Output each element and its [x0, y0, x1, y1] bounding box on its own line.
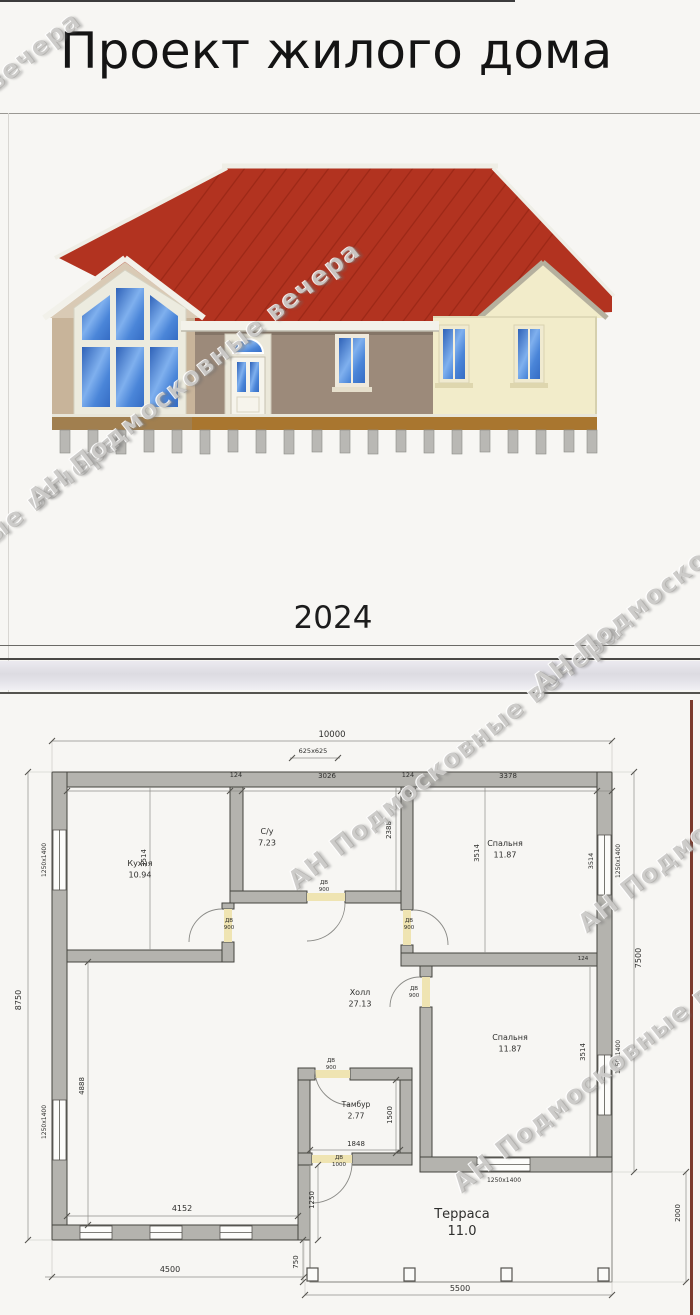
dimension-label: 2388 — [385, 821, 393, 839]
room-area: 11.87 — [494, 851, 517, 860]
dimension-label: 1250 — [308, 1191, 316, 1209]
dimension-label: 2000 — [674, 1204, 682, 1222]
door-thresholds — [224, 893, 430, 1163]
dimension-lines — [25, 738, 689, 1298]
dimension-label: 1250х1400 — [615, 1040, 622, 1074]
divider-line-3 — [0, 692, 700, 694]
dimension-label: 4888 — [78, 1077, 86, 1095]
porch-canopy — [181, 321, 439, 331]
dimension-label: 3026 — [318, 772, 336, 780]
door-size: 900 — [409, 993, 420, 999]
dimension-label: 1250х1400 — [41, 843, 48, 877]
door-size: 1000 — [332, 1162, 346, 1168]
dimension-label: 124 — [578, 956, 589, 962]
divider-band — [0, 661, 700, 690]
door-label: ДВ — [327, 1058, 335, 1064]
room-name: Спальня — [487, 839, 523, 848]
right-edge-line — [690, 700, 693, 1315]
right-window-1 — [435, 325, 473, 388]
room-name: С/у — [260, 827, 273, 836]
divider-line-1 — [0, 645, 700, 646]
dimension-label: 1250х1400 — [615, 844, 622, 878]
dimension-label: 8750 — [14, 990, 23, 1010]
house-elevation-image — [0, 115, 700, 560]
dimension-label: 1250х1400 — [41, 1105, 48, 1139]
entry-door — [225, 334, 271, 418]
divider-line-2 — [0, 658, 700, 660]
dimension-label: 10000 — [318, 730, 345, 740]
dimension-label: 750 — [292, 1255, 300, 1268]
room-area: 10.94 — [129, 871, 152, 880]
dimension-label: 124 — [230, 771, 242, 779]
header-divider — [0, 113, 700, 114]
room-name: Тамбур — [341, 1100, 371, 1109]
door-size: 900 — [319, 887, 330, 893]
door-size: 900 — [404, 925, 415, 931]
right-window-2 — [510, 325, 548, 388]
dimension-label: 1848 — [347, 1140, 365, 1148]
door-label: ДВ — [410, 986, 418, 992]
middle-window — [332, 334, 372, 392]
dimension-label: 1250х1400 — [487, 1177, 521, 1184]
page-title: Проект жилого дома — [60, 22, 612, 80]
dimension-label: 4152 — [172, 1204, 192, 1213]
room-name: Спальня — [492, 1033, 528, 1042]
room-area: 7.23 — [258, 839, 276, 848]
room-area: 2.77 — [348, 1112, 365, 1121]
room-name: Холл — [350, 988, 371, 997]
dimension-label: 4500 — [160, 1265, 180, 1274]
door-label: ДВ — [405, 918, 413, 924]
plan-labels: 10000625х6251243026124337887501250х14003… — [14, 730, 682, 1293]
dimension-label: 3378 — [499, 772, 517, 780]
floor-plan: 10000625х6251243026124337887501250х14003… — [0, 715, 700, 1315]
dimension-label: 3514 — [473, 844, 481, 862]
year-label: 2024 — [0, 600, 666, 636]
dimension-label: 1500 — [386, 1106, 394, 1124]
gable-windows — [82, 288, 178, 407]
dimension-label: 3514 — [587, 853, 595, 870]
top-border — [0, 0, 515, 2]
door-label: ДВ — [320, 880, 328, 886]
door-size: 900 — [326, 1065, 337, 1071]
room-name: Кухня — [127, 859, 152, 868]
dimension-label: 7500 — [634, 948, 643, 968]
door-size: 900 — [224, 925, 235, 931]
door-label: ДВ — [335, 1155, 343, 1161]
room-area: 11.0 — [448, 1224, 477, 1239]
door-label: ДВ — [225, 918, 233, 924]
dimension-label: 625х625 — [299, 747, 328, 755]
dimension-label: 5500 — [450, 1284, 470, 1293]
dimension-label: 3514 — [579, 1043, 587, 1061]
project-page: Проект жилого дома — [0, 0, 700, 1315]
room-name: Терраса — [433, 1207, 490, 1222]
foundation — [52, 414, 597, 454]
room-area: 27.13 — [349, 1000, 372, 1009]
dimension-label: 124 — [402, 771, 414, 779]
room-area: 11.87 — [499, 1045, 522, 1054]
